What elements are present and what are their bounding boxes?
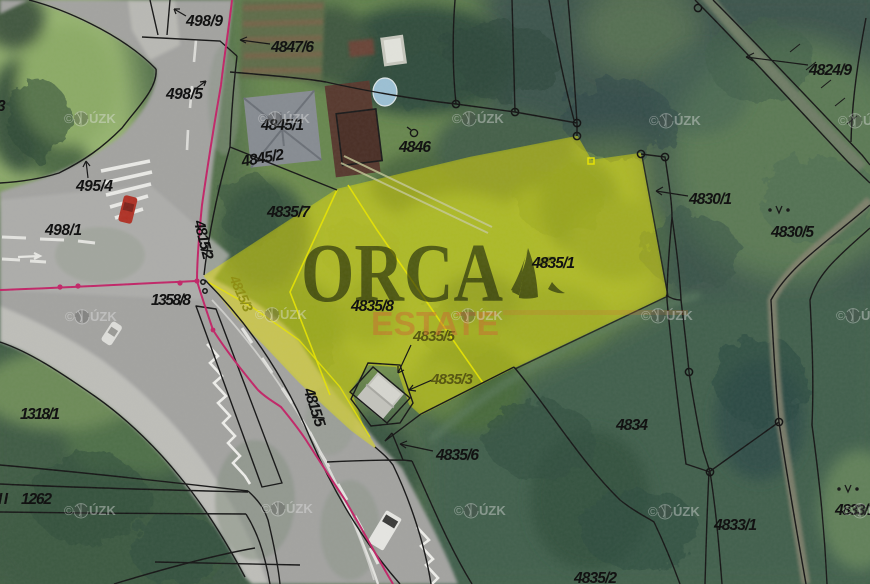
- svg-text:495/4: 495/4: [75, 178, 113, 195]
- svg-text:498/9: 498/9: [185, 13, 223, 30]
- svg-text:4835/7: 4835/7: [266, 204, 311, 221]
- svg-text:498/5: 498/5: [165, 86, 203, 103]
- svg-text:498/1: 498/1: [44, 222, 82, 239]
- svg-text:4847/6: 4847/6: [270, 39, 314, 56]
- svg-text:4846: 4846: [398, 139, 431, 156]
- svg-text:4835/2: 4835/2: [573, 570, 617, 584]
- svg-text:4834: 4834: [615, 417, 648, 434]
- svg-text:II: II: [0, 491, 9, 508]
- svg-text:3: 3: [0, 98, 6, 115]
- svg-text:4833/1: 4833/1: [713, 517, 757, 534]
- svg-text:©: ©: [64, 111, 74, 126]
- svg-text:ÚZK: ÚZK: [89, 111, 116, 126]
- svg-text:1262: 1262: [21, 491, 52, 508]
- svg-text:4830/1: 4830/1: [688, 191, 732, 208]
- svg-text:1318/1: 1318/1: [20, 406, 60, 423]
- svg-text:1358/8: 1358/8: [151, 292, 191, 309]
- svg-text:4835/6: 4835/6: [435, 447, 479, 464]
- svg-text:4835/3: 4835/3: [430, 371, 474, 388]
- svg-text:4824/9: 4824/9: [808, 62, 852, 79]
- svg-text:4830/5: 4830/5: [770, 224, 814, 241]
